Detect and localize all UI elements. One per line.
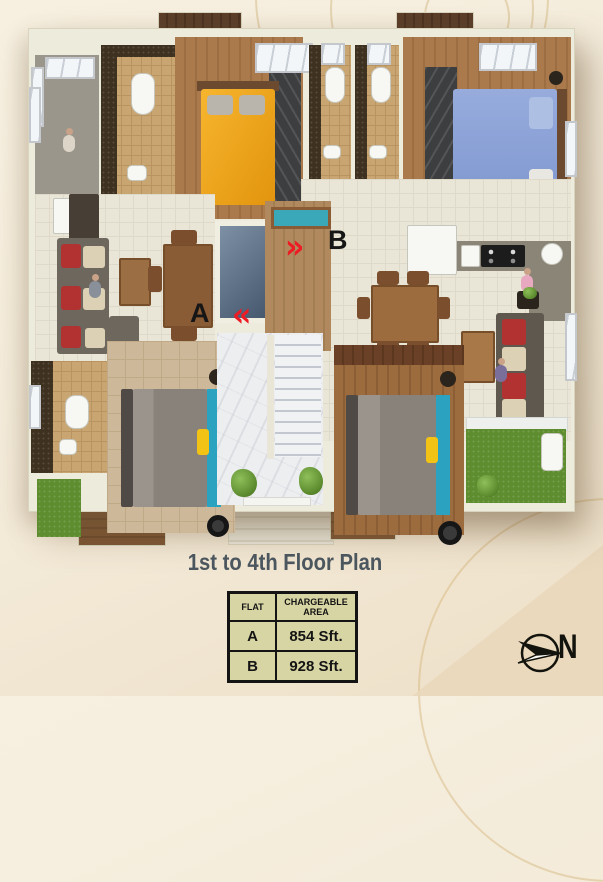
toilet (131, 73, 155, 115)
bathroom-3-tiled-wall (355, 45, 367, 179)
kitchen-sink (461, 245, 480, 267)
page: { "plan": { "flat_a_label": "A", "flat_b… (0, 0, 603, 696)
bed-gray-a (133, 389, 207, 507)
plant (477, 475, 499, 497)
wall-art (271, 207, 331, 229)
bedroom-4-wardrobe (334, 345, 464, 365)
sofa-cushion (83, 246, 105, 268)
chair (407, 271, 429, 285)
stair-divider-wall (267, 335, 274, 459)
bed-pillow-yellow (197, 429, 209, 455)
flower-pot (549, 71, 563, 85)
sofa-cushion (61, 286, 81, 310)
plant (231, 469, 257, 497)
skylight-window (321, 43, 345, 65)
bed-pillow (207, 95, 233, 115)
person-figure (89, 281, 101, 298)
bed-headboard (121, 389, 133, 507)
sofa-cushion (85, 328, 105, 348)
side-stool-ring (438, 521, 462, 545)
bathroom-1-tiled-wall (101, 45, 175, 57)
sofa-cushion (61, 326, 81, 348)
flat-b-label: B (328, 227, 348, 254)
col-flat-header: FLAT (229, 593, 277, 622)
flat-b-cell: B (229, 651, 277, 682)
side-stool (440, 371, 456, 387)
plant (523, 287, 537, 299)
side-stool-ring (207, 515, 229, 537)
washbasin (369, 145, 387, 159)
area-b-cell: 928 Sft. (276, 651, 357, 682)
stair-steps (275, 335, 321, 457)
entry-arrow-b: » (285, 233, 301, 262)
bed-pillow (239, 95, 265, 115)
chargeable-area-table: FLAT CHARGEABLE AREA A 854 Sft. B 928 Sf… (227, 591, 358, 683)
bed-runner (436, 395, 450, 515)
bed-headboard (346, 395, 358, 515)
chair (171, 230, 197, 245)
bed-pillow-yellow (426, 437, 438, 463)
stove (481, 245, 525, 267)
washbasin (127, 165, 147, 181)
toilet (65, 395, 89, 429)
threshold (243, 497, 311, 506)
chair (357, 297, 370, 319)
skylight-window (255, 43, 313, 73)
window (29, 87, 41, 143)
person-figure (495, 365, 507, 382)
chair (148, 266, 162, 292)
skylight-window (479, 43, 537, 71)
kitchen-cabinet (407, 225, 457, 275)
coffee-table (119, 258, 151, 306)
window (29, 385, 41, 429)
skylight-window (45, 57, 95, 79)
flat-a-cell: A (229, 621, 277, 651)
chair (437, 297, 450, 319)
col-area-header: CHARGEABLE AREA (276, 593, 357, 622)
plant (299, 467, 323, 495)
chair (377, 271, 399, 285)
window (565, 121, 577, 177)
table-row: A 854 Sft. (229, 621, 357, 651)
bed-pillow (529, 97, 553, 129)
planter (541, 433, 563, 471)
toilet (371, 67, 391, 103)
mixing-bowl (541, 243, 563, 265)
washbasin (323, 145, 341, 159)
area-a-cell: 854 Sft. (276, 621, 357, 651)
sofa-cushion (502, 319, 526, 345)
study-desk-b (461, 331, 495, 383)
skylight-window (367, 43, 391, 65)
tv-unit-dark (69, 194, 99, 240)
toilet (325, 67, 345, 103)
dining-table-b (371, 285, 439, 343)
balcony-a-lawn (37, 479, 81, 537)
bathroom-1-tiled-wall (101, 45, 117, 203)
table-header-row: FLAT CHARGEABLE AREA (229, 593, 357, 622)
sofa-cushion (61, 244, 81, 268)
table-row: B 928 Sft. (229, 651, 357, 682)
chair (171, 326, 197, 341)
bathroom-2-tiled-wall (309, 45, 321, 179)
north-label: N (558, 628, 578, 667)
entry-arrow-a: « (232, 301, 248, 330)
floor-plan: » B « A (28, 28, 575, 512)
bed-gray-b (358, 395, 436, 515)
person-figure (63, 135, 75, 152)
window (565, 313, 577, 381)
plan-title: 1st to 4th Floor Plan (140, 549, 430, 576)
flat-a-label: A (190, 300, 210, 327)
washbasin (59, 439, 77, 455)
